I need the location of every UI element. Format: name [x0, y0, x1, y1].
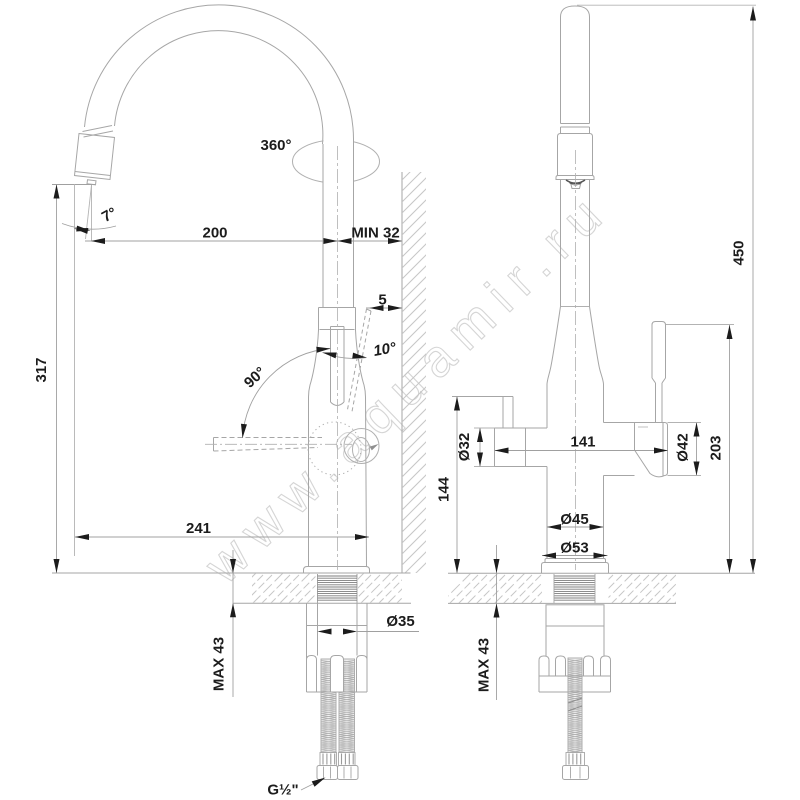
- svg-text:MAX 43: MAX 43: [476, 638, 493, 692]
- svg-text:Ø35: Ø35: [386, 613, 414, 630]
- svg-text:5: 5: [378, 292, 386, 309]
- svg-text:360°: 360°: [260, 137, 291, 154]
- svg-text:241: 241: [186, 520, 211, 537]
- svg-text:144: 144: [436, 476, 453, 502]
- svg-text:Ø42: Ø42: [675, 433, 692, 461]
- svg-text:Ø32: Ø32: [456, 433, 473, 461]
- svg-text:Ø45: Ø45: [560, 511, 588, 528]
- svg-text:203: 203: [708, 435, 725, 460]
- svg-text:MAX 43: MAX 43: [211, 637, 228, 691]
- svg-text:MIN 32: MIN 32: [351, 225, 399, 242]
- svg-text:450: 450: [731, 240, 748, 265]
- svg-text:G½": G½": [267, 782, 298, 799]
- svg-text:141: 141: [570, 434, 595, 451]
- svg-text:200: 200: [202, 225, 227, 242]
- svg-text:317: 317: [33, 357, 50, 382]
- svg-text:Ø53: Ø53: [560, 540, 588, 557]
